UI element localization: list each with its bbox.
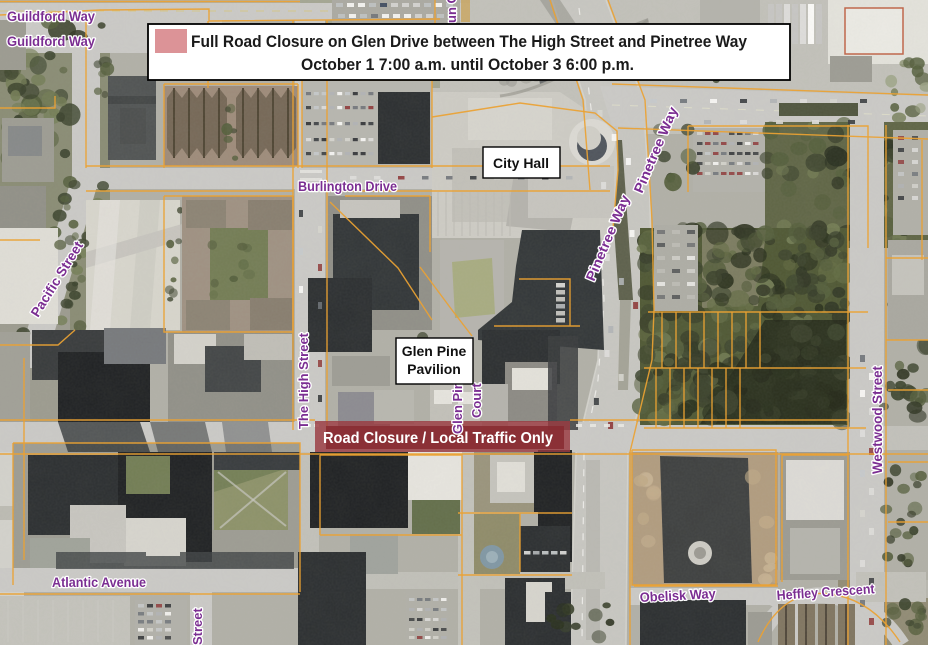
svg-text:October 1 7:00 a.m. until Octo: October 1 7:00 a.m. until October 3 6:00… — [301, 56, 634, 74]
svg-text:Court: Court — [469, 383, 484, 418]
svg-text:City Hall: City Hall — [493, 155, 549, 171]
svg-text:Guildford Way: Guildford Way — [7, 9, 95, 24]
svg-text:Westwood Street: Westwood Street — [870, 366, 885, 474]
svg-text:The High Street: The High Street — [296, 332, 311, 429]
svg-text:Glen Pine: Glen Pine — [402, 343, 467, 359]
svg-text:Pavilion: Pavilion — [407, 361, 461, 377]
svg-text:Full Road Closure on Glen Driv: Full Road Closure on Glen Drive between … — [191, 33, 748, 51]
svg-text:Street: Street — [190, 607, 205, 645]
svg-text:Guildford Way: Guildford Way — [7, 34, 95, 49]
svg-text:Burlington Drive: Burlington Drive — [298, 179, 397, 194]
svg-text:un Co: un Co — [444, 0, 459, 23]
svg-text:Atlantic Avenue: Atlantic Avenue — [52, 575, 146, 590]
svg-text:Road Closure / Local Traffic O: Road Closure / Local Traffic Only — [323, 430, 553, 447]
